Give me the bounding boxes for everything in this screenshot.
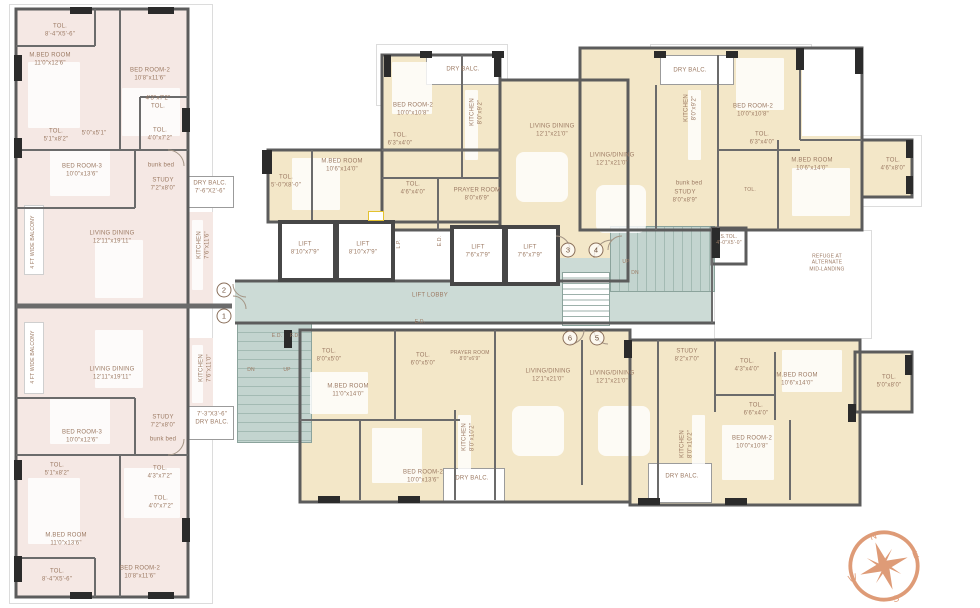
room-toilet: TOL.4'6"x8'0" [881,158,906,173]
room-toilet: TOL.8'0"x5'0" [317,349,342,364]
room-toilet: TOL.5'-0"X8'-0" [271,175,301,190]
room-bedroom-3: BED ROOM-310'0"x12'6" [62,430,102,445]
compass-star-diagonal [867,549,901,583]
unit-marker-2: 2 [217,283,232,298]
room-study: STUDY8'0"x8'9" [673,190,698,205]
room-living-dining: LIVING/DINING12'1"x21'0" [590,153,635,168]
room-toilet: TOL.4'0"x7'2" [149,496,174,511]
room-living-dining: LIVING DINING12'11"x19'11" [90,231,135,246]
stair-up: UP [622,259,629,265]
room-kitchen: KITCHEN8'0"x9'2" [470,98,485,126]
compass-rose: N E S W [838,524,930,608]
room-dry-balcony: DRY BALC. [673,67,706,75]
room-living-dining: LIVING DINING12'1"x21'0" [530,124,575,139]
room-bedroom-2: BED ROOM-210'0"x13'6" [403,470,443,485]
room-kitchen: KITCHEN7'6"x11'0" [199,354,214,382]
room-toilet: TOL.5'0"x8'0" [877,375,902,390]
balcony-note: 4 FT WIDE BALCONY [30,330,36,383]
room-master-bedroom: M.BED ROOM10'6"x14'0" [321,159,362,174]
compass-e: E [911,549,920,561]
room-bedroom-2: BED ROOM-210'8"x11'6" [120,566,160,581]
compass-w: W [847,572,859,584]
room-living-dining: LIVING/DINING12'1"x21'0" [590,371,635,386]
room-toilet: TOL.6'3"x4'0" [750,132,775,147]
room-kitchen: KITCHEN7'6"x11'6" [197,231,212,259]
room-toilet: TOL.4'6"x4'0" [401,182,426,197]
room-dry-balcony: DRY BALC.7'-6"X2'-6" [193,181,226,196]
room-master-bedroom: M.BED ROOM11'0"x14'0" [327,384,368,399]
unit-marker-6: 6 [563,331,578,346]
room-toilet: TOL.6'0"x5'0" [411,353,436,368]
room-servant-toilet: S.TOL.4'-0"X5'-0" [716,234,741,247]
room-study: STUDY7'2"x8'0" [151,415,176,430]
room-dry-balcony: DRY BALC. [665,473,698,481]
room-toilet: TOL.5'1"x8'2" [44,129,69,144]
room-bedroom-2: BED ROOM-210'8"x11'6" [130,68,170,83]
room-toilet: 4'3"x7'2"TOL. [146,96,171,111]
stair-up: UP [283,367,290,373]
room-bedroom-3: BED ROOM-310'0"x13'6" [62,164,102,179]
room-lift: LIFT8'10"x7'9" [291,242,319,257]
unit-marker-3: 3 [561,243,576,258]
room-bedroom-2: BED ROOM-210'0"x10'8" [393,103,433,118]
room-toilet: TOL. [744,187,756,193]
room-bedroom-2: BED ROOM-210'0"x10'8" [733,104,773,119]
room-master-bedroom: M.BED ROOM11'0"x12'6" [29,53,70,68]
duct-ed: E.D. [272,333,283,339]
walls-layer [0,0,980,608]
furniture-bunk-bed: bunk bed [150,436,176,444]
room-kitchen: KITCHEN8'0"x10'2" [462,423,477,451]
balcony-note: 4 FT WIDE BALCONY [30,215,36,268]
duct-lp: L.P. [396,239,402,248]
duct-fd: F.D. [290,333,300,339]
room-kitchen: KITCHEN8'0"x10'2" [680,430,695,458]
unit-marker-4: 4 [589,243,604,258]
unit-marker-1: 1 [217,309,232,324]
duct-ed: E.D. [415,319,426,325]
room-dry-balcony: DRY BALC. [455,475,488,483]
room-toilet: TOL.8'-4"X5'-6" [45,24,75,39]
room-lift: LIFT8'10"x7'9" [349,242,377,257]
room-toilet: TOL.4'0"x7'2" [148,128,173,143]
room-toilet: TOL.6'3"x4'0" [388,133,413,148]
duct-ed: E.D. [437,236,443,247]
room-toilet: TOL.8'-4"X5'-6" [42,569,72,584]
room-master-bedroom: M.BED ROOM10'6"x14'0" [791,158,832,173]
highlight-box [368,211,384,221]
furniture-bunk-bed: bunk bed [676,180,702,188]
room-prayer: PRAYER ROOM8'0"x6'9" [454,188,501,203]
room-dry-balcony: 7'-3"X3'-6"DRY BALC. [195,412,228,427]
room-toilet: TOL.6'6"x4'0" [744,403,769,418]
lift-lobby: LIFT LOBBY [412,292,448,300]
room-master-bedroom: M.BED ROOM10'6"x14'0" [776,373,817,388]
stair-dn: DN [631,270,639,276]
room-bedroom-2: BED ROOM-210'0"x10'8" [732,436,772,451]
room-kitchen: KITCHEN8'0"x9'2" [684,94,699,122]
room-study: STUDY8'2"x7'0" [675,349,700,364]
room-living-dining: LIVING/DINING12'1"x21'0" [526,369,571,384]
floor-plan: TOL.8'-4"X5'-6"M.BED ROOM11'0"x12'6"BED … [0,0,980,608]
passage-dim: 5'0"x5'1" [82,130,107,138]
room-lift: LIFT7'6"x7'9" [466,245,491,260]
room-lift: LIFT7'6"x7'9" [518,245,543,260]
room-prayer: PRAYER ROOM8'0"x6'9" [450,350,489,363]
refuge-note: REFUGE ATALTERNATEMID-LANDING [809,254,844,273]
stair-dn: DN [247,367,255,373]
room-study: STUDY7'2"x8'0" [151,178,176,193]
room-toilet: TOL.5'1"x8'2" [45,463,70,478]
unit-marker-5: 5 [590,331,605,346]
room-living-dining: LIVING DINING12'11"x19'11" [90,367,135,382]
furniture-bunk-bed: bunk bed [148,162,174,170]
room-toilet: TOL.4'3"x4'0" [735,359,760,374]
room-dry-balcony: DRY BALC. [446,66,479,74]
room-toilet: TOL.4'3"x7'2" [148,466,173,481]
room-master-bedroom: M.BED ROOM11'0"x13'6" [45,533,86,548]
